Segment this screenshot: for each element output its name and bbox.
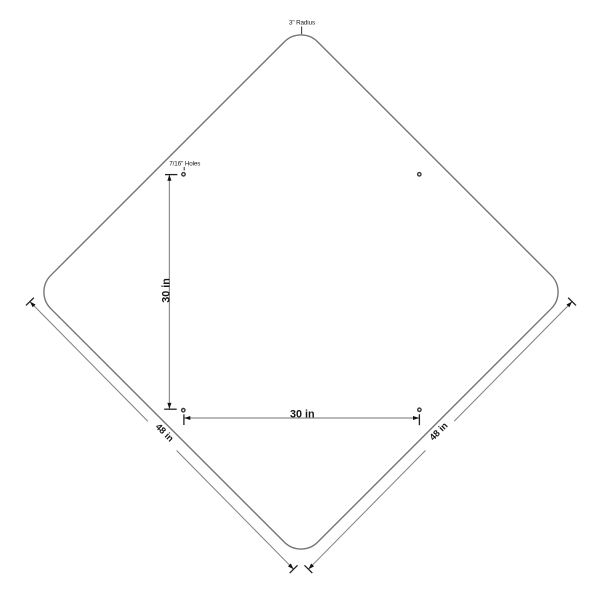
svg-text:7/16" Holes: 7/16" Holes: [169, 161, 200, 168]
svg-text:30 in: 30 in: [161, 278, 173, 303]
svg-text:3" Radius: 3" Radius: [289, 20, 315, 27]
svg-text:30 in: 30 in: [290, 409, 315, 421]
